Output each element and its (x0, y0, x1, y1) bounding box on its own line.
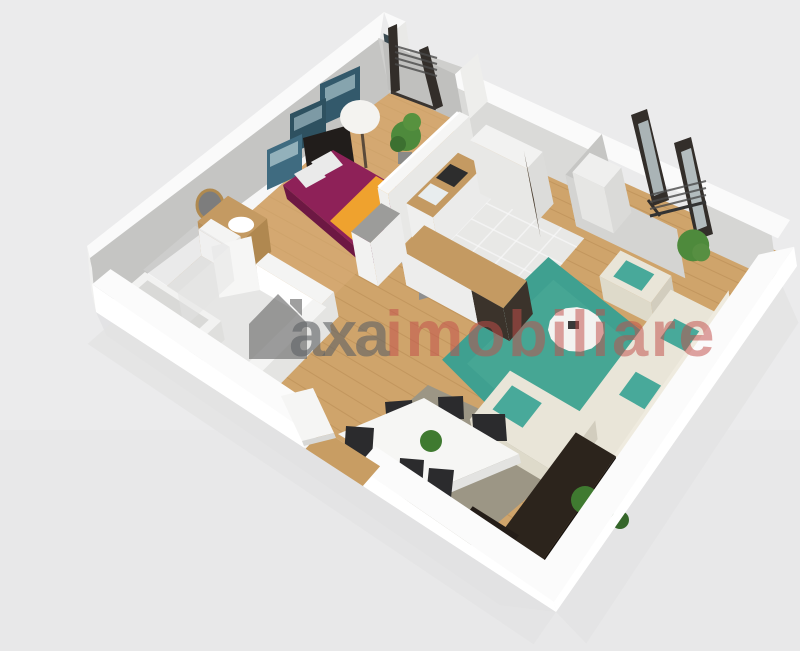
svg-text:imobiliare: imobiliare (385, 297, 717, 370)
svg-text:axa: axa (289, 298, 390, 370)
